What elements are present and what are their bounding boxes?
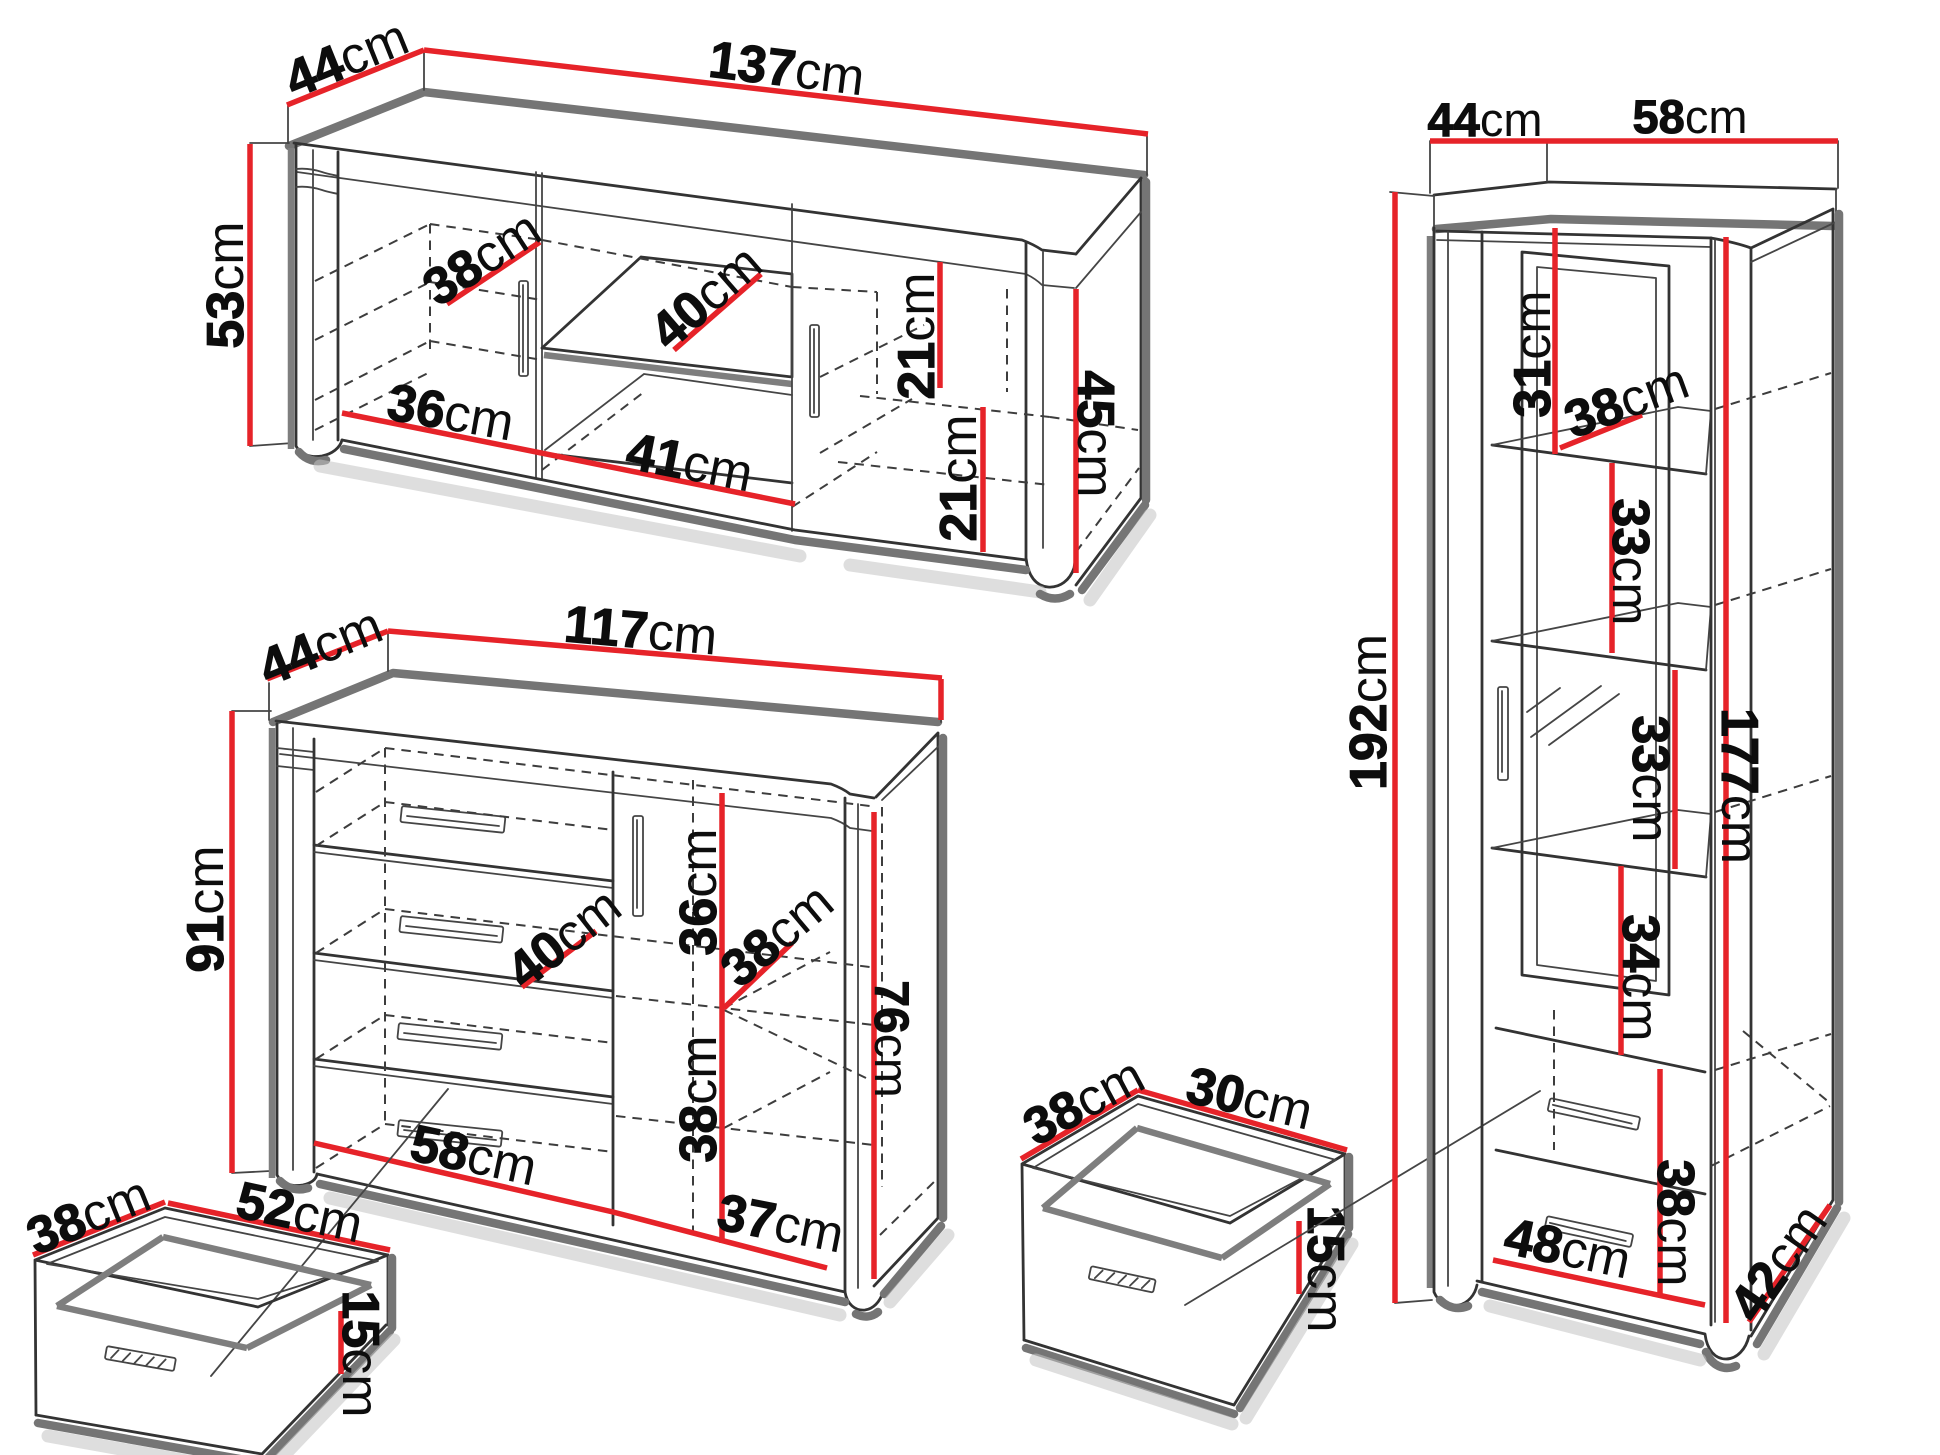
- svg-text:15cm: 15cm: [331, 1290, 389, 1417]
- svg-text:192cm: 192cm: [1340, 634, 1398, 790]
- svg-text:91cm: 91cm: [177, 845, 235, 972]
- svg-text:76cm: 76cm: [864, 980, 917, 1097]
- svg-text:45cm: 45cm: [1066, 370, 1124, 497]
- svg-text:15cm: 15cm: [1296, 1205, 1354, 1332]
- svg-text:33cm: 33cm: [1621, 715, 1679, 842]
- svg-text:36cm: 36cm: [670, 828, 728, 955]
- svg-text:21cm: 21cm: [930, 414, 988, 541]
- svg-text:177cm: 177cm: [1710, 708, 1768, 864]
- svg-text:38cm: 38cm: [1646, 1159, 1704, 1286]
- svg-text:34cm: 34cm: [1611, 914, 1669, 1041]
- svg-text:58cm: 58cm: [1633, 90, 1748, 143]
- svg-text:33cm: 33cm: [1601, 498, 1659, 625]
- svg-text:31cm: 31cm: [1504, 290, 1562, 417]
- svg-text:53cm: 53cm: [197, 221, 255, 348]
- svg-text:38cm: 38cm: [670, 1035, 728, 1162]
- svg-text:21cm: 21cm: [888, 272, 946, 399]
- svg-text:44cm: 44cm: [1428, 93, 1543, 146]
